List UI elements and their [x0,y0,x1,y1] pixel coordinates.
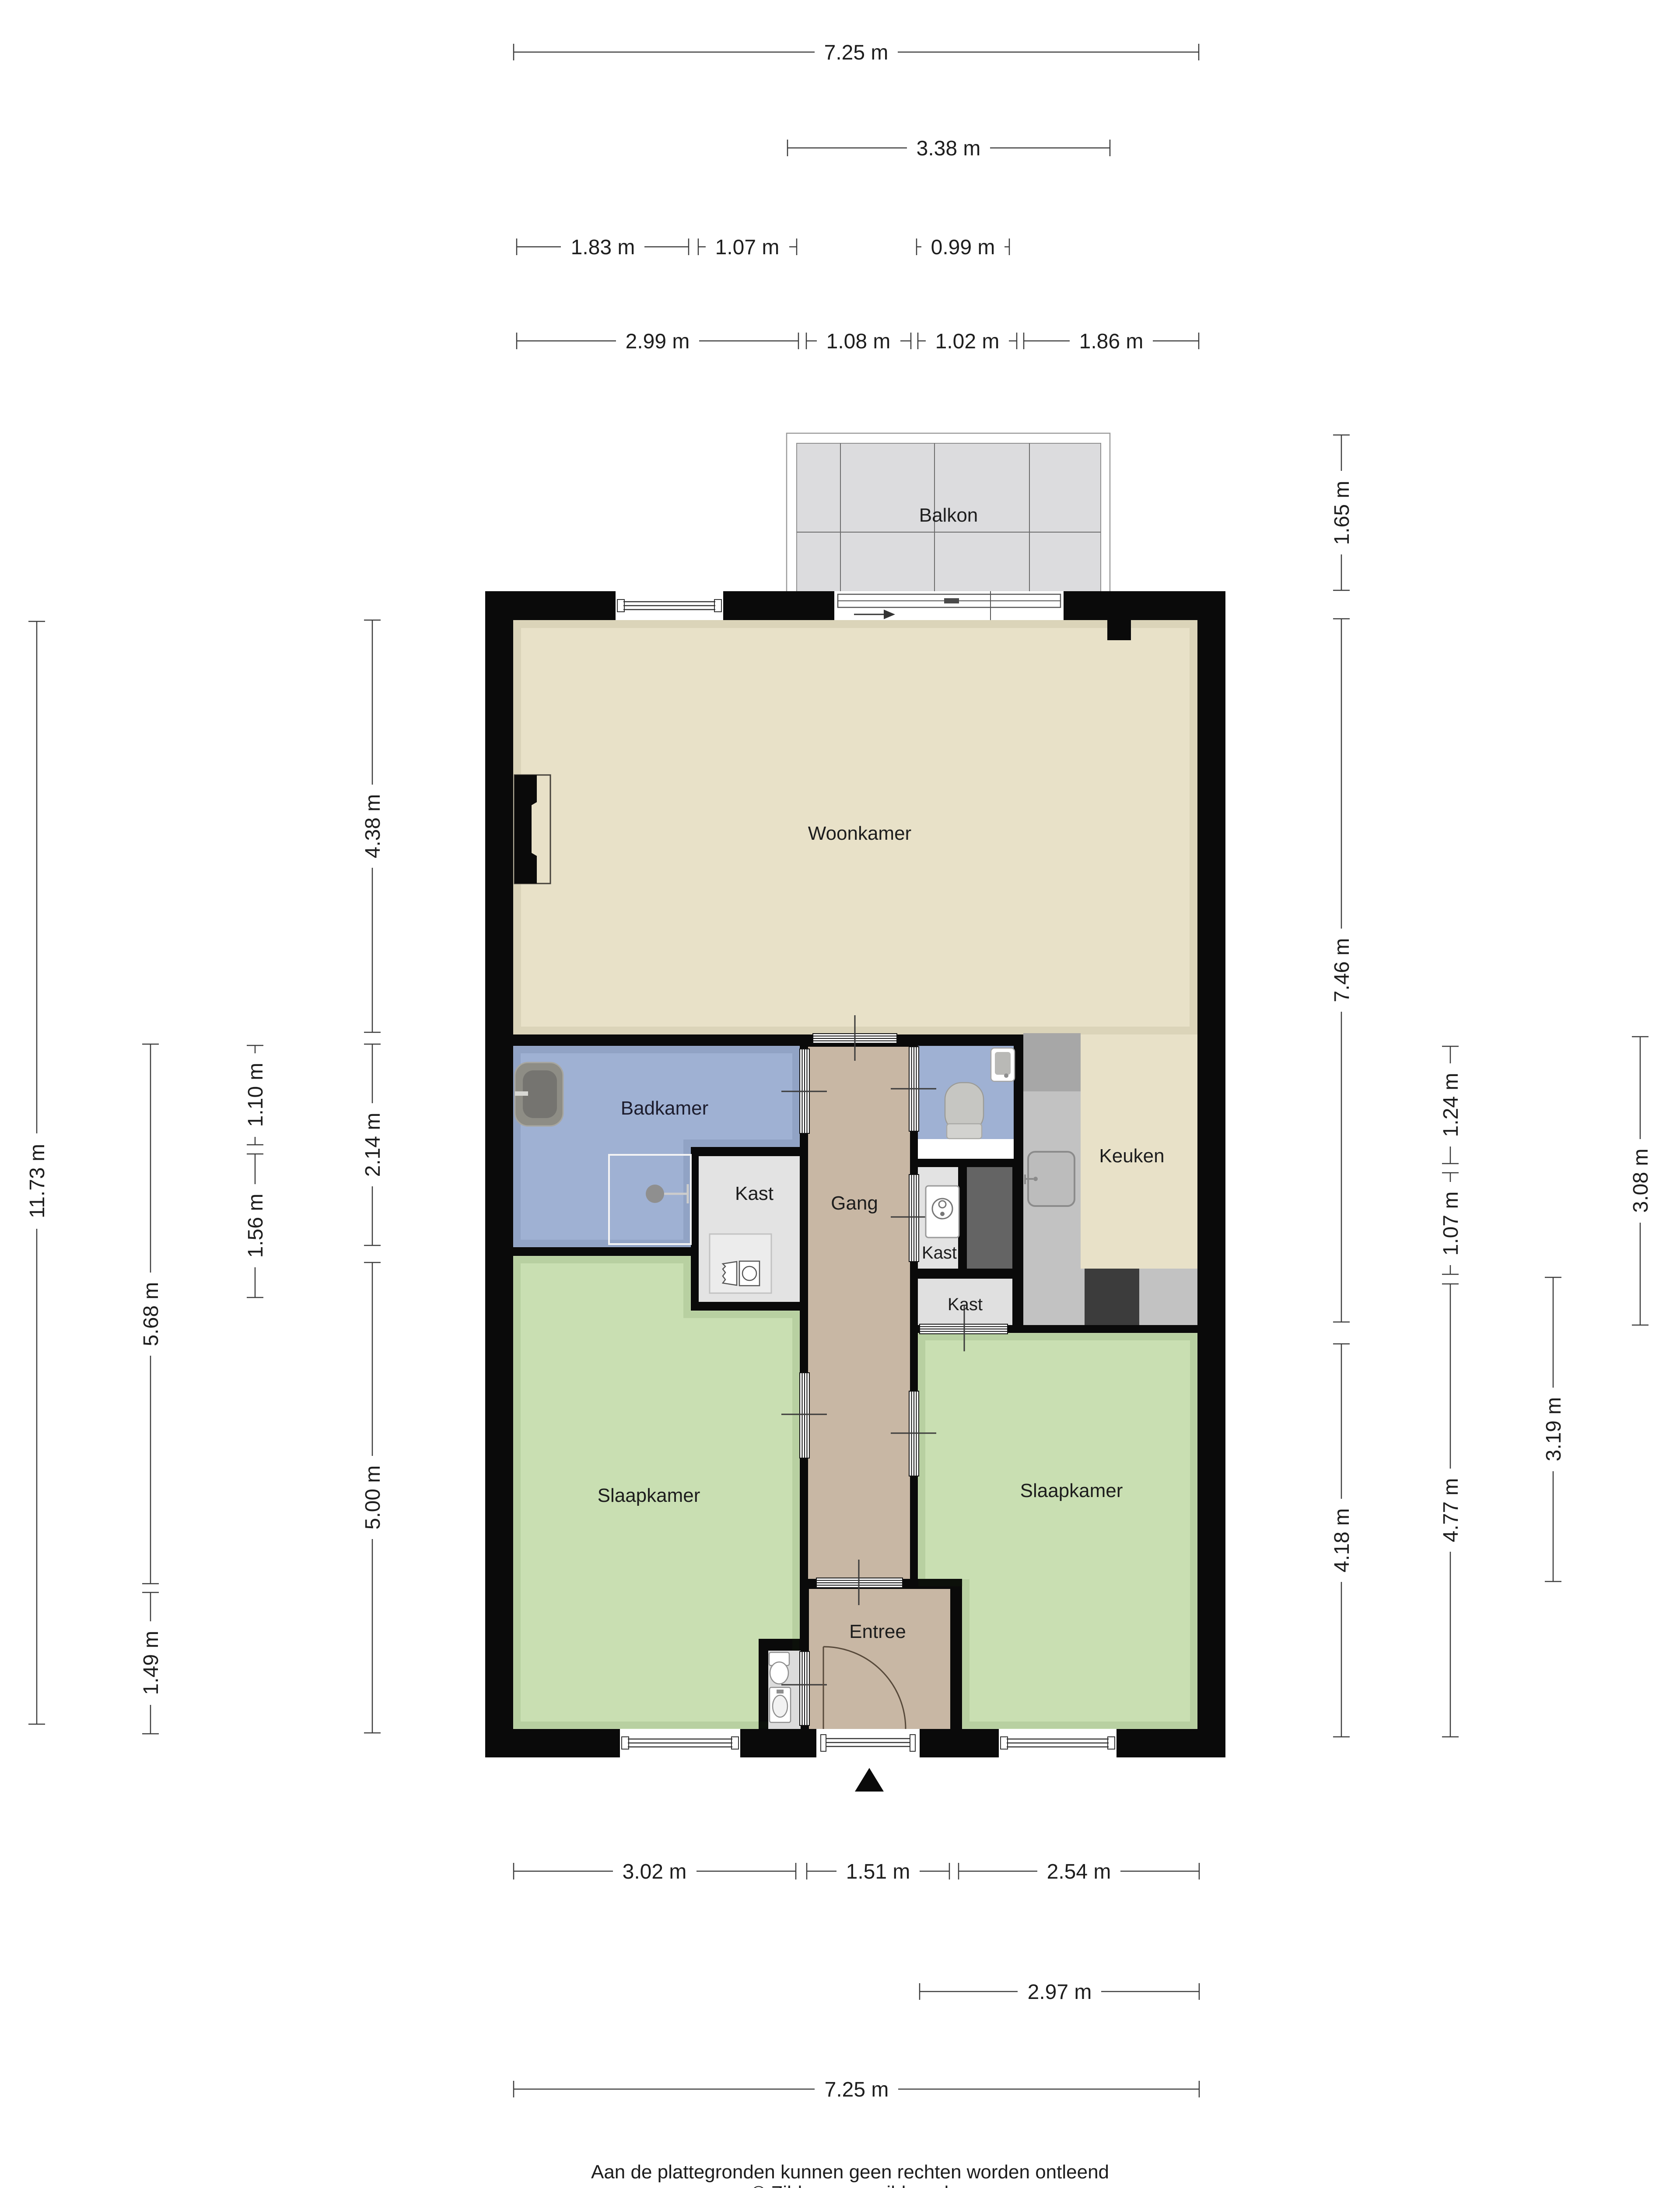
svg-text:1.49 m: 1.49 m [140,1631,163,1695]
svg-text:5.00 m: 5.00 m [361,1466,385,1530]
svg-text:1.24 m: 1.24 m [1439,1073,1463,1137]
svg-text:3.38 m: 3.38 m [917,137,981,160]
svg-text:2.97 m: 2.97 m [1028,1981,1092,2004]
svg-text:Kast: Kast [735,1183,773,1204]
svg-text:5.68 m: 5.68 m [140,1282,163,1346]
svg-text:Slaapkamer: Slaapkamer [1020,1480,1123,1501]
svg-text:1.86 m: 1.86 m [1079,330,1144,353]
svg-text:1.65 m: 1.65 m [1330,481,1354,545]
svg-text:2.54 m: 2.54 m [1047,1860,1111,1883]
svg-text:1.07 m: 1.07 m [715,236,780,259]
svg-text:11.73 m: 11.73 m [26,1144,49,1218]
svg-text:1.10 m: 1.10 m [244,1063,267,1127]
svg-text:7.46 m: 7.46 m [1330,938,1354,1003]
svg-text:2.99 m: 2.99 m [626,330,690,353]
svg-text:Slaapkamer: Slaapkamer [598,1485,700,1506]
svg-text:Badkamer: Badkamer [621,1098,709,1119]
svg-text:© Zibber www.zibber.nl: © Zibber www.zibber.nl [752,2182,949,2188]
svg-text:1.07 m: 1.07 m [1439,1192,1463,1256]
svg-text:1.51 m: 1.51 m [846,1860,910,1883]
svg-text:0.99 m: 0.99 m [931,236,995,259]
svg-text:Keuken: Keuken [1099,1145,1164,1167]
svg-text:4.38 m: 4.38 m [361,794,385,859]
svg-text:Balkon: Balkon [919,505,978,526]
svg-text:Aan de plattegronden kunnen ge: Aan de plattegronden kunnen geen rechten… [591,2161,1109,2183]
svg-text:3.08 m: 3.08 m [1629,1149,1652,1213]
svg-text:3.02 m: 3.02 m [623,1860,687,1883]
svg-text:Entree: Entree [849,1621,906,1642]
svg-text:7.25 m: 7.25 m [825,2078,889,2101]
svg-text:1.08 m: 1.08 m [826,330,891,353]
svg-text:1.02 m: 1.02 m [935,330,1000,353]
svg-text:4.77 m: 4.77 m [1439,1478,1463,1543]
svg-text:3.19 m: 3.19 m [1542,1397,1565,1462]
svg-text:1.83 m: 1.83 m [571,236,635,259]
svg-text:1.56 m: 1.56 m [244,1194,267,1258]
svg-text:4.18 m: 4.18 m [1330,1508,1354,1573]
svg-text:Woonkamer: Woonkamer [808,823,911,844]
svg-text:7.25 m: 7.25 m [824,41,889,64]
svg-text:Gang: Gang [831,1192,878,1214]
svg-text:Kast: Kast [922,1243,957,1262]
svg-text:2.14 m: 2.14 m [361,1113,385,1177]
svg-text:Kast: Kast [948,1295,983,1314]
